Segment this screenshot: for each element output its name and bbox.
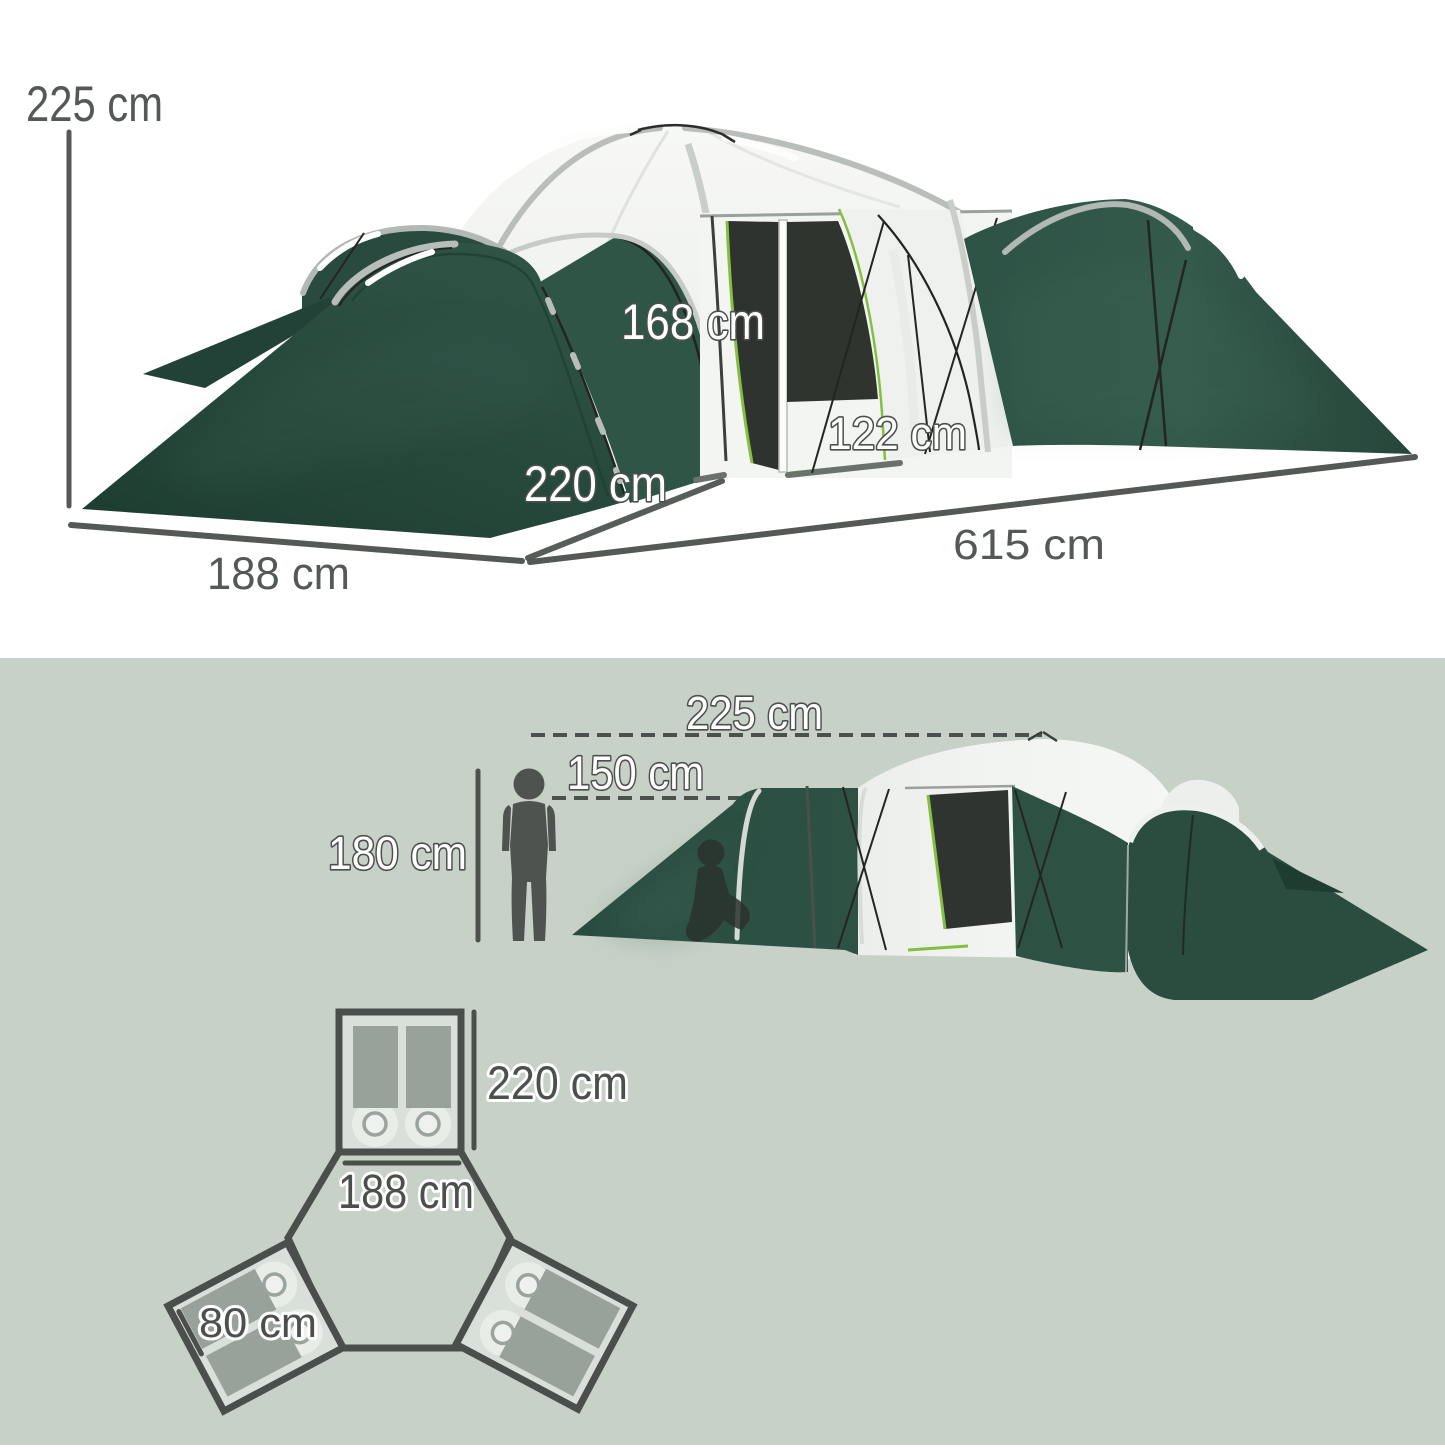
svg-text:220 cm: 220 cm [487,1056,628,1109]
svg-text:220 cm: 220 cm [524,456,667,512]
svg-text:188 cm: 188 cm [338,1166,474,1219]
svg-text:225 cm: 225 cm [26,76,163,132]
svg-text:80 cm: 80 cm [199,1299,317,1346]
svg-text:168 cm: 168 cm [621,294,765,350]
svg-text:225 cm: 225 cm [686,687,823,739]
svg-text:180 cm: 180 cm [328,827,467,879]
svg-text:615 cm: 615 cm [953,521,1105,569]
svg-text:150 cm: 150 cm [567,746,704,799]
svg-text:122 cm: 122 cm [828,408,967,459]
svg-text:188 cm: 188 cm [207,548,350,599]
